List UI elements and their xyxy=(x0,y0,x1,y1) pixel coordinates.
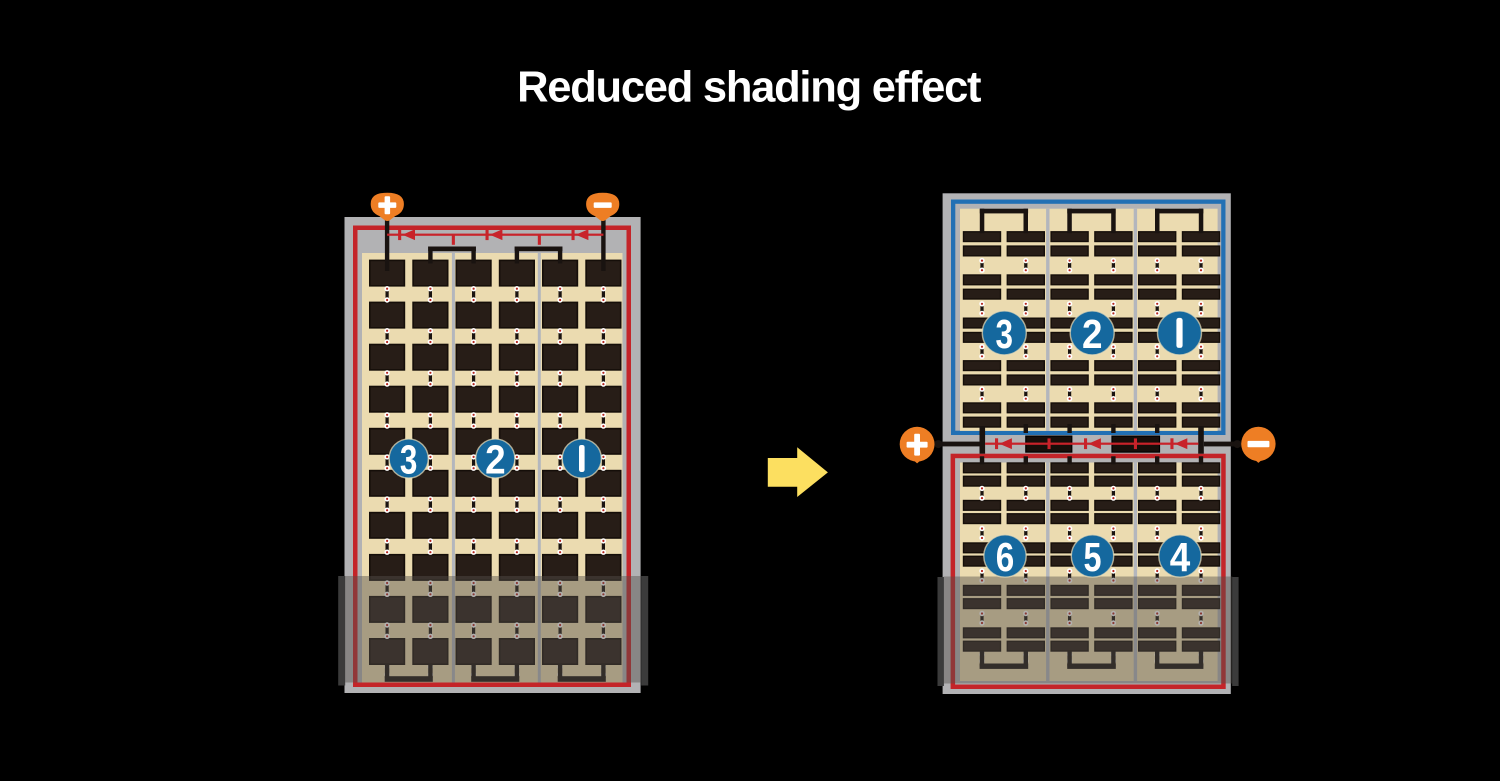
svg-text:6: 6 xyxy=(996,534,1015,580)
svg-text:Reduced shading effect: Reduced shading effect xyxy=(517,64,981,112)
svg-text:5: 5 xyxy=(1084,534,1102,580)
svg-text:3: 3 xyxy=(996,311,1014,357)
svg-text:4: 4 xyxy=(1170,534,1191,580)
svg-text:3: 3 xyxy=(400,437,418,483)
svg-text:2: 2 xyxy=(485,437,506,483)
svg-text:2: 2 xyxy=(1082,311,1103,357)
